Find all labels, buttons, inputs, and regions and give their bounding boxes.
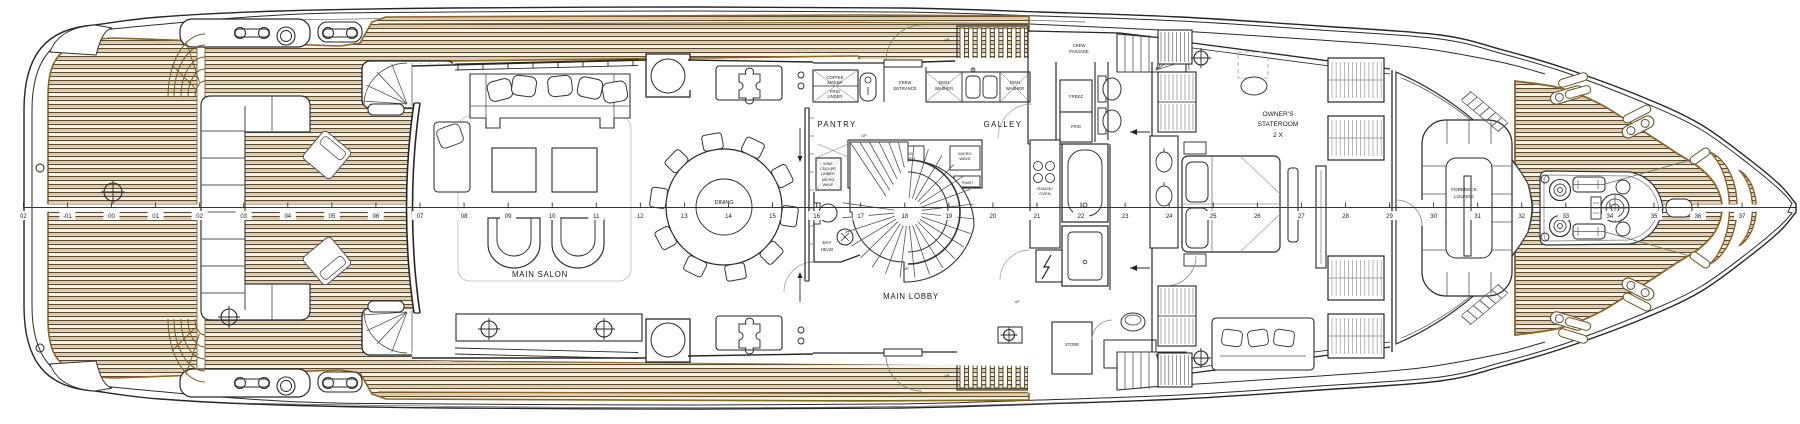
svg-text:01: 01 <box>152 214 159 220</box>
svg-text:21: 21 <box>1034 214 1041 220</box>
svg-text:MAIN SALON: MAIN SALON <box>512 270 568 279</box>
svg-text:25: 25 <box>1210 214 1217 220</box>
svg-text:23: 23 <box>1122 214 1129 220</box>
svg-text:30: 30 <box>1430 214 1437 220</box>
svg-text:14: 14 <box>725 214 732 220</box>
svg-text:27: 27 <box>1298 214 1305 220</box>
svg-text:17: 17 <box>857 214 864 220</box>
svg-text:UP: UP <box>903 267 909 271</box>
svg-text:15: 15 <box>769 214 776 220</box>
svg-text:MAIN LOBBY: MAIN LOBBY <box>883 292 939 301</box>
svg-text:MAKER: MAKER <box>828 80 843 85</box>
svg-text:COOLER: COOLER <box>820 167 836 171</box>
svg-text:WASHER: WASHER <box>935 86 953 91</box>
svg-text:05: 05 <box>329 214 336 220</box>
svg-text:PANTRY: PANTRY <box>817 120 856 129</box>
svg-text:16: 16 <box>813 214 820 220</box>
svg-text:22: 22 <box>1078 214 1085 220</box>
svg-text:LOUNGE: LOUNGE <box>1454 194 1473 199</box>
svg-text:13: 13 <box>681 214 688 220</box>
svg-text:STATEROOM: STATEROOM <box>1258 121 1299 128</box>
svg-text:07: 07 <box>417 214 424 220</box>
svg-text:WINE: WINE <box>823 162 833 166</box>
svg-text:-01: -01 <box>63 214 72 220</box>
svg-text:CREW: CREW <box>899 80 912 85</box>
svg-text:00: 00 <box>108 214 115 220</box>
svg-text:FOREDECK: FOREDECK <box>1451 187 1477 192</box>
svg-text:WAVE: WAVE <box>959 156 971 161</box>
svg-text:28: 28 <box>1342 214 1349 220</box>
svg-text:UP: UP <box>945 374 951 378</box>
svg-text:UP: UP <box>945 38 951 42</box>
svg-text:18: 18 <box>901 214 908 220</box>
svg-text:29: 29 <box>1386 214 1393 220</box>
svg-text:33: 33 <box>1562 214 1569 220</box>
svg-text:2 X: 2 X <box>1273 132 1283 139</box>
svg-text:32: 32 <box>1518 214 1525 220</box>
svg-text:CREW: CREW <box>1073 43 1086 48</box>
svg-text:36: 36 <box>1695 214 1702 220</box>
svg-text:TRASH: TRASH <box>961 181 973 185</box>
svg-text:UP: UP <box>1015 300 1021 304</box>
svg-text:24: 24 <box>1166 214 1173 220</box>
svg-text:DAY: DAY <box>823 240 832 245</box>
svg-text:HEAD: HEAD <box>821 247 834 252</box>
svg-text:37: 37 <box>1739 214 1746 220</box>
svg-text:WAVE: WAVE <box>823 183 834 187</box>
svg-text:02: 02 <box>196 214 203 220</box>
svg-text:DISH: DISH <box>1010 80 1020 85</box>
svg-text:WASHER: WASHER <box>1006 86 1024 91</box>
svg-text:OWNER'S: OWNER'S <box>1263 111 1295 118</box>
svg-text:20: 20 <box>990 214 997 220</box>
svg-text:OVEN: OVEN <box>1039 191 1050 196</box>
svg-text:08: 08 <box>461 214 468 220</box>
svg-text:DINING: DINING <box>715 200 734 206</box>
svg-text:10: 10 <box>549 214 556 220</box>
svg-text:03: 03 <box>240 214 247 220</box>
svg-text:DISH: DISH <box>939 80 949 85</box>
svg-text:FRIG: FRIG <box>1071 124 1081 129</box>
svg-text:UP: UP <box>861 134 867 138</box>
svg-text:GALLEY: GALLEY <box>984 120 1023 129</box>
svg-text:26: 26 <box>1254 214 1261 220</box>
svg-text:34: 34 <box>1607 214 1614 220</box>
svg-text:STORE: STORE <box>1065 342 1080 347</box>
svg-text:ENTRANCE: ENTRANCE <box>893 86 916 91</box>
svg-text:11: 11 <box>593 214 600 220</box>
svg-text:UNDER: UNDER <box>828 94 843 99</box>
svg-text:UNDER: UNDER <box>821 172 835 176</box>
svg-text:04: 04 <box>284 214 291 220</box>
svg-text:35: 35 <box>1651 214 1658 220</box>
svg-text:31: 31 <box>1474 214 1481 220</box>
svg-text:FREEZ: FREEZ <box>1069 94 1083 99</box>
svg-text:MICRO: MICRO <box>822 178 835 182</box>
svg-text:06: 06 <box>373 214 380 220</box>
svg-text:12: 12 <box>637 214 644 220</box>
svg-text:19: 19 <box>945 214 952 220</box>
svg-text:PASSAGE: PASSAGE <box>1069 49 1089 54</box>
svg-text:09: 09 <box>505 214 512 220</box>
svg-text:02: 02 <box>20 214 27 220</box>
